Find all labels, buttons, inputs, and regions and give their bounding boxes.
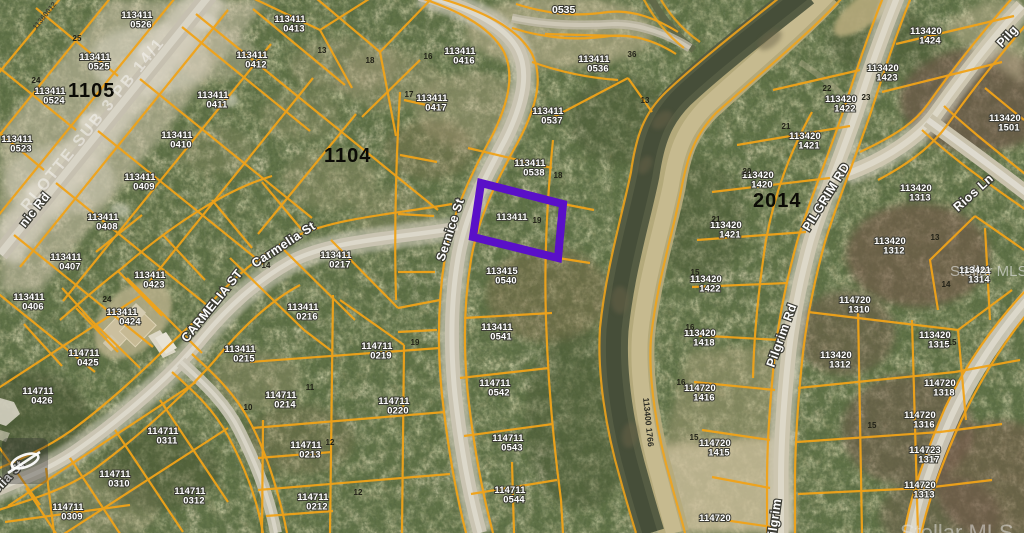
- svg-text:18: 18: [554, 171, 563, 180]
- svg-text:0535: 0535: [552, 4, 576, 16]
- svg-text:2014: 2014: [753, 190, 802, 212]
- svg-text:15: 15: [868, 421, 877, 430]
- svg-text:13: 13: [641, 96, 650, 105]
- svg-text:Stellar MLS: Stellar MLS: [900, 520, 1014, 533]
- svg-text:14: 14: [942, 280, 951, 289]
- svg-text:Stellar MLS: Stellar MLS: [950, 263, 1024, 280]
- svg-text:114720: 114720: [699, 513, 731, 523]
- svg-text:21: 21: [712, 215, 721, 224]
- svg-text:10: 10: [244, 403, 253, 412]
- svg-text:113411: 113411: [496, 212, 527, 222]
- svg-text:13: 13: [931, 233, 940, 242]
- svg-text:15: 15: [948, 338, 957, 347]
- svg-text:15: 15: [690, 433, 699, 442]
- svg-text:11: 11: [306, 383, 315, 392]
- svg-text:12: 12: [326, 438, 335, 447]
- svg-text:17: 17: [405, 90, 414, 99]
- svg-text:19: 19: [533, 216, 542, 225]
- svg-text:22: 22: [823, 84, 832, 93]
- svg-text:36: 36: [628, 50, 637, 59]
- svg-text:15: 15: [691, 268, 700, 277]
- svg-text:25: 25: [73, 34, 82, 43]
- svg-text:16: 16: [424, 52, 433, 61]
- svg-text:20: 20: [743, 167, 752, 176]
- svg-text:16: 16: [677, 378, 686, 387]
- svg-text:16: 16: [686, 323, 695, 332]
- svg-text:19: 19: [411, 338, 420, 347]
- svg-text:21: 21: [782, 122, 791, 131]
- svg-text:23: 23: [862, 93, 871, 102]
- svg-text:18: 18: [366, 56, 375, 65]
- svg-text:1104: 1104: [324, 145, 371, 167]
- svg-text:13: 13: [318, 46, 327, 55]
- svg-text:12: 12: [354, 488, 363, 497]
- svg-text:14: 14: [262, 261, 271, 270]
- svg-text:24: 24: [32, 76, 41, 85]
- svg-text:24: 24: [103, 295, 112, 304]
